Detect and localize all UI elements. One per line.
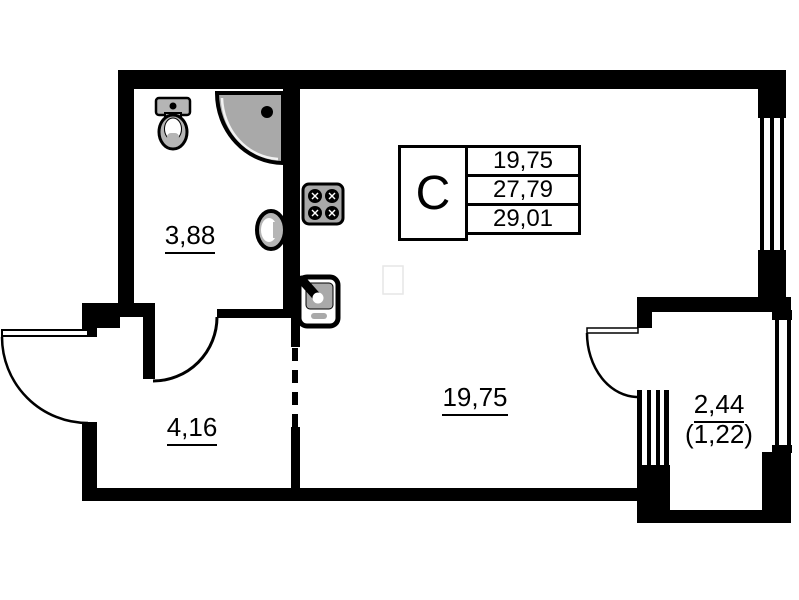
balcony-window-block: [637, 390, 669, 468]
hallway-area-label: 4,16: [160, 414, 224, 441]
floor-plan-drawing: [0, 0, 799, 600]
shower-drain: [261, 106, 273, 118]
door-swing-arc: [153, 317, 217, 381]
door-leaf: [143, 317, 155, 379]
door-leaf: [587, 328, 638, 333]
bathroom-area-label: 3,88: [158, 222, 222, 249]
window-line: [664, 390, 669, 468]
window-line: [647, 390, 651, 468]
window-line: [637, 390, 642, 468]
window-line: [760, 116, 764, 252]
window-line: [656, 390, 660, 468]
window-balcony-outer: [775, 318, 791, 448]
window-line: [787, 318, 791, 448]
stove-icon: [303, 184, 343, 224]
shower-tray: [217, 93, 283, 163]
unit-living-area: 19,75: [465, 145, 581, 177]
faint-artifact: [383, 266, 403, 294]
door-swing-arc: [587, 333, 638, 397]
balcony-area-value: 2,44: [694, 389, 745, 423]
wall: [637, 312, 652, 328]
bathroom-door: [143, 317, 217, 381]
wall: [118, 70, 786, 89]
walls: [82, 70, 792, 523]
unit-type-letter: С: [398, 145, 468, 241]
window-main: [760, 116, 784, 252]
wall: [97, 303, 120, 328]
balcony-reduced-area-label: (1,22): [680, 421, 758, 448]
washbasin-inner-notch: [273, 222, 281, 238]
living-area-value: 19,75: [442, 382, 507, 416]
wall: [637, 297, 791, 312]
floor-plan-page: 3,88 4,16 19,75 2,44 (1,22) С 19,75 27,7…: [0, 0, 799, 600]
door-swing-arc: [2, 337, 88, 423]
window-line: [775, 318, 779, 448]
unit-info-box: С 19,75 27,79 29,01: [398, 145, 581, 241]
balcony-reduced-area-value: (1,22): [685, 419, 753, 449]
hallway-area-value: 4,16: [167, 412, 218, 446]
corner-shower-icon: [217, 93, 283, 163]
unit-total-area: 29,01: [465, 203, 581, 235]
window-line: [780, 116, 784, 252]
wall: [762, 452, 791, 523]
bathroom-area-value: 3,88: [165, 220, 216, 254]
sink-drainer: [311, 313, 327, 319]
window-line: [770, 116, 774, 252]
wall: [82, 488, 638, 501]
kitchen-sink-icon: [299, 277, 338, 326]
unit-area-no-balcony: 27,79: [465, 174, 581, 206]
toilet-bowl-shade: [167, 133, 179, 141]
sink-faucet-head: [313, 293, 324, 304]
toilet-icon: [156, 98, 190, 149]
living-area-label: 19,75: [435, 384, 515, 411]
stove-body: [303, 184, 343, 224]
balcony-door: [587, 328, 638, 397]
toilet-button: [170, 103, 177, 110]
entrance-door: [2, 330, 88, 423]
balcony-area-label: 2,44: [688, 391, 750, 418]
wall: [291, 427, 300, 488]
door-leaf: [2, 330, 88, 336]
unit-info-values: 19,75 27,79 29,01: [465, 145, 581, 241]
wall: [758, 88, 786, 115]
wall: [118, 70, 134, 317]
